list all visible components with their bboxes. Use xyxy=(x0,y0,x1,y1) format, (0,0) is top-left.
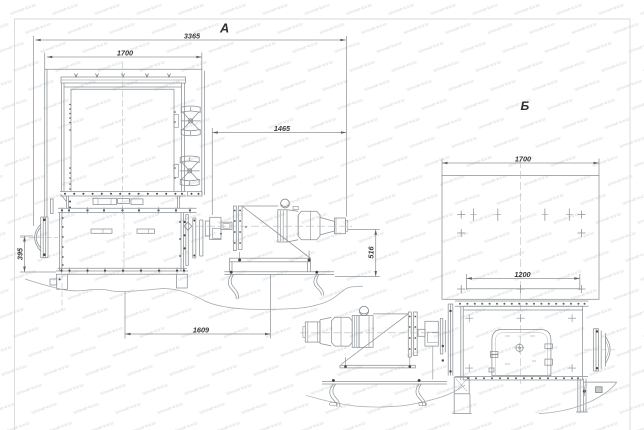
svg-text:tehsnab-krd.kz: tehsnab-krd.kz xyxy=(211,363,238,377)
svg-text:tehsnab-krd.kz: tehsnab-krd.kz xyxy=(640,268,644,282)
svg-text:tehsnab-krd.kz: tehsnab-krd.kz xyxy=(205,249,232,263)
svg-text:tehsnab-krd.kz: tehsnab-krd.kz xyxy=(631,363,644,377)
svg-text:tehsnab-krd.kz: tehsnab-krd.kz xyxy=(352,116,379,130)
svg-text:tehsnab-krd.kz: tehsnab-krd.kz xyxy=(430,268,457,282)
svg-text:tehsnab-krd.kz: tehsnab-krd.kz xyxy=(181,59,208,73)
svg-text:tehsnab-krd.kz: tehsnab-krd.kz xyxy=(514,2,541,16)
svg-text:tehsnab-krd.kz: tehsnab-krd.kz xyxy=(520,382,547,396)
svg-text:tehsnab-krd.kz: tehsnab-krd.kz xyxy=(0,382,1,396)
svg-text:tehsnab-krd.kz: tehsnab-krd.kz xyxy=(361,287,388,301)
svg-text:tehsnab-krd.kz: tehsnab-krd.kz xyxy=(4,154,31,168)
svg-text:tehsnab-krd.kz: tehsnab-krd.kz xyxy=(298,154,325,168)
svg-text:tehsnab-krd.kz: tehsnab-krd.kz xyxy=(577,135,604,149)
svg-text:tehsnab-krd.kz: tehsnab-krd.kz xyxy=(85,97,112,111)
svg-text:tehsnab-krd.kz: tehsnab-krd.kz xyxy=(43,363,70,377)
svg-text:tehsnab-krd.kz: tehsnab-krd.kz xyxy=(259,211,286,225)
svg-text:tehsnab-krd.kz: tehsnab-krd.kz xyxy=(328,192,355,206)
svg-text:tehsnab-krd.kz: tehsnab-krd.kz xyxy=(490,78,517,92)
svg-text:tehsnab-krd.kz: tehsnab-krd.kz xyxy=(556,268,583,282)
svg-text:tehsnab-krd.kz: tehsnab-krd.kz xyxy=(157,135,184,149)
svg-text:tehsnab-krd.kz: tehsnab-krd.kz xyxy=(253,97,280,111)
svg-text:tehsnab-krd.kz: tehsnab-krd.kz xyxy=(0,135,16,149)
svg-text:tehsnab-krd.kz: tehsnab-krd.kz xyxy=(304,2,331,16)
svg-text:tehsnab-krd.kz: tehsnab-krd.kz xyxy=(289,249,316,263)
svg-text:tehsnab-krd.kz: tehsnab-krd.kz xyxy=(529,21,556,35)
svg-text:tehsnab-krd.kz: tehsnab-krd.kz xyxy=(301,211,328,225)
svg-text:tehsnab-krd.kz: tehsnab-krd.kz xyxy=(472,2,499,16)
svg-text:tehsnab-krd.kz: tehsnab-krd.kz xyxy=(40,40,67,54)
svg-text:tehsnab-krd.kz: tehsnab-krd.kz xyxy=(169,97,196,111)
svg-text:tehsnab-krd.kz: tehsnab-krd.kz xyxy=(16,116,43,130)
svg-text:tehsnab-krd.kz: tehsnab-krd.kz xyxy=(280,78,307,92)
svg-text:tehsnab-krd.kz: tehsnab-krd.kz xyxy=(322,78,349,92)
svg-text:tehsnab-krd.kz: tehsnab-krd.kz xyxy=(502,40,529,54)
svg-text:tehsnab-krd.kz: tehsnab-krd.kz xyxy=(55,59,82,73)
svg-text:tehsnab-krd.kz: tehsnab-krd.kz xyxy=(346,268,373,282)
svg-text:tehsnab-krd.kz: tehsnab-krd.kz xyxy=(586,306,613,320)
svg-text:tehsnab-krd.kz: tehsnab-krd.kz xyxy=(130,420,157,430)
svg-text:tehsnab-krd.kz: tehsnab-krd.kz xyxy=(592,420,619,430)
svg-text:tehsnab-krd.kz: tehsnab-krd.kz xyxy=(0,173,4,187)
svg-text:tehsnab-krd.kz: tehsnab-krd.kz xyxy=(532,78,559,92)
svg-text:tehsnab-krd.kz: tehsnab-krd.kz xyxy=(520,116,547,130)
svg-text:tehsnab-krd.kz: tehsnab-krd.kz xyxy=(598,2,625,16)
svg-text:tehsnab-krd.kz: tehsnab-krd.kz xyxy=(298,420,325,430)
svg-text:tehsnab-krd.kz: tehsnab-krd.kz xyxy=(526,230,553,244)
svg-text:tehsnab-krd.kz: tehsnab-krd.kz xyxy=(226,116,253,130)
svg-text:tehsnab-krd.kz: tehsnab-krd.kz xyxy=(277,21,304,35)
svg-text:tehsnab-krd.kz: tehsnab-krd.kz xyxy=(184,382,211,396)
svg-text:tehsnab-krd.kz: tehsnab-krd.kz xyxy=(418,306,445,320)
svg-text:tehsnab-krd.kz: tehsnab-krd.kz xyxy=(115,135,142,149)
svg-text:tehsnab-krd.kz: tehsnab-krd.kz xyxy=(307,59,334,73)
svg-text:tehsnab-krd.kz: tehsnab-krd.kz xyxy=(367,135,394,149)
svg-text:tehsnab-krd.kz: tehsnab-krd.kz xyxy=(10,2,37,16)
svg-text:tehsnab-krd.kz: tehsnab-krd.kz xyxy=(586,40,613,54)
svg-text:tehsnab-krd.kz: tehsnab-krd.kz xyxy=(604,116,631,130)
svg-text:tehsnab-krd.kz: tehsnab-krd.kz xyxy=(562,116,589,130)
svg-text:tehsnab-krd.kz: tehsnab-krd.kz xyxy=(547,97,574,111)
svg-text:tehsnab-krd.kz: tehsnab-krd.kz xyxy=(475,59,502,73)
svg-text:tehsnab-krd.kz: tehsnab-krd.kz xyxy=(67,287,94,301)
svg-text:tehsnab-krd.kz: tehsnab-krd.kz xyxy=(67,21,94,35)
svg-text:tehsnab-krd.kz: tehsnab-krd.kz xyxy=(421,97,448,111)
svg-text:tehsnab-krd.kz: tehsnab-krd.kz xyxy=(265,325,292,339)
svg-text:tehsnab-krd.kz: tehsnab-krd.kz xyxy=(28,78,55,92)
svg-text:tehsnab-krd.kz: tehsnab-krd.kz xyxy=(376,40,403,54)
svg-text:tehsnab-krd.kz: tehsnab-krd.kz xyxy=(223,325,250,339)
svg-text:tehsnab-krd.kz: tehsnab-krd.kz xyxy=(472,268,499,282)
svg-text:tehsnab-krd.kz: tehsnab-krd.kz xyxy=(166,306,193,320)
svg-text:tehsnab-krd.kz: tehsnab-krd.kz xyxy=(448,78,475,92)
svg-text:tehsnab-krd.kz: tehsnab-krd.kz xyxy=(0,287,10,301)
svg-text:tehsnab-krd.kz: tehsnab-krd.kz xyxy=(592,154,619,168)
svg-text:tehsnab-krd.kz: tehsnab-krd.kz xyxy=(568,230,595,244)
svg-text:tehsnab-krd.kz: tehsnab-krd.kz xyxy=(64,230,91,244)
svg-text:tehsnab-krd.kz: tehsnab-krd.kz xyxy=(151,21,178,35)
svg-text:tehsnab-krd.kz: tehsnab-krd.kz xyxy=(463,97,490,111)
svg-text:tehsnab-krd.kz: tehsnab-krd.kz xyxy=(544,306,571,320)
svg-text:tehsnab-krd.kz: tehsnab-krd.kz xyxy=(220,2,247,16)
svg-text:tehsnab-krd.kz: tehsnab-krd.kz xyxy=(241,401,268,415)
svg-text:tehsnab-krd.kz: tehsnab-krd.kz xyxy=(325,135,352,149)
svg-text:tehsnab-krd.kz: tehsnab-krd.kz xyxy=(502,306,529,320)
svg-text:tehsnab-krd.kz: tehsnab-krd.kz xyxy=(382,154,409,168)
svg-text:tehsnab-krd.kz: tehsnab-krd.kz xyxy=(31,401,58,415)
svg-text:tehsnab-krd.kz: tehsnab-krd.kz xyxy=(58,382,85,396)
svg-text:tehsnab-krd.kz: tehsnab-krd.kz xyxy=(457,249,484,263)
svg-text:tehsnab-krd.kz: tehsnab-krd.kz xyxy=(214,154,241,168)
svg-text:3365: 3365 xyxy=(184,31,201,40)
svg-text:tehsnab-krd.kz: tehsnab-krd.kz xyxy=(346,2,373,16)
svg-text:tehsnab-krd.kz: tehsnab-krd.kz xyxy=(40,306,67,320)
svg-text:tehsnab-krd.kz: tehsnab-krd.kz xyxy=(145,173,172,187)
svg-text:tehsnab-krd.kz: tehsnab-krd.kz xyxy=(313,173,340,187)
svg-text:tehsnab-krd.kz: tehsnab-krd.kz xyxy=(0,401,16,415)
svg-text:tehsnab-krd.kz: tehsnab-krd.kz xyxy=(541,249,568,263)
svg-text:tehsnab-krd.kz: tehsnab-krd.kz xyxy=(46,420,73,430)
svg-text:tehsnab-krd.kz: tehsnab-krd.kz xyxy=(73,401,100,415)
svg-text:tehsnab-krd.kz: tehsnab-krd.kz xyxy=(403,21,430,35)
svg-text:tehsnab-krd.kz: tehsnab-krd.kz xyxy=(361,21,388,35)
svg-text:tehsnab-krd.kz: tehsnab-krd.kz xyxy=(559,325,586,339)
svg-text:tehsnab-krd.kz: tehsnab-krd.kz xyxy=(454,192,481,206)
svg-text:tehsnab-krd.kz: tehsnab-krd.kz xyxy=(19,173,46,187)
svg-text:tehsnab-krd.kz: tehsnab-krd.kz xyxy=(73,135,100,149)
svg-text:tehsnab-krd.kz: tehsnab-krd.kz xyxy=(0,21,10,35)
svg-text:tehsnab-krd.kz: tehsnab-krd.kz xyxy=(460,306,487,320)
svg-text:Б: Б xyxy=(521,99,530,113)
svg-text:tehsnab-krd.kz: tehsnab-krd.kz xyxy=(277,287,304,301)
svg-text:tehsnab-krd.kz: tehsnab-krd.kz xyxy=(403,287,430,301)
svg-text:tehsnab-krd.kz: tehsnab-krd.kz xyxy=(244,192,271,206)
svg-text:tehsnab-krd.kz: tehsnab-krd.kz xyxy=(508,420,535,430)
svg-text:tehsnab-krd.kz: tehsnab-krd.kz xyxy=(550,154,577,168)
svg-text:tehsnab-krd.kz: tehsnab-krd.kz xyxy=(589,363,616,377)
svg-text:tehsnab-krd.kz: tehsnab-krd.kz xyxy=(109,21,136,35)
svg-text:tehsnab-krd.kz: tehsnab-krd.kz xyxy=(538,192,565,206)
svg-text:tehsnab-krd.kz: tehsnab-krd.kz xyxy=(295,97,322,111)
svg-text:tehsnab-krd.kz: tehsnab-krd.kz xyxy=(157,401,184,415)
svg-text:tehsnab-krd.kz: tehsnab-krd.kz xyxy=(166,40,193,54)
svg-text:tehsnab-krd.kz: tehsnab-krd.kz xyxy=(115,401,142,415)
svg-text:tehsnab-krd.kz: tehsnab-krd.kz xyxy=(349,59,376,73)
svg-text:tehsnab-krd.kz: tehsnab-krd.kz xyxy=(388,268,415,282)
svg-text:tehsnab-krd.kz: tehsnab-krd.kz xyxy=(385,211,412,225)
svg-text:1465: 1465 xyxy=(274,124,291,133)
svg-text:tehsnab-krd.kz: tehsnab-krd.kz xyxy=(52,2,79,16)
svg-text:tehsnab-krd.kz: tehsnab-krd.kz xyxy=(202,192,229,206)
svg-text:tehsnab-krd.kz: tehsnab-krd.kz xyxy=(424,154,451,168)
svg-text:tehsnab-krd.kz: tehsnab-krd.kz xyxy=(139,59,166,73)
svg-text:tehsnab-krd.kz: tehsnab-krd.kz xyxy=(499,249,526,263)
svg-text:tehsnab-krd.kz: tehsnab-krd.kz xyxy=(154,344,181,358)
svg-text:tehsnab-krd.kz: tehsnab-krd.kz xyxy=(460,40,487,54)
svg-text:А: А xyxy=(219,21,229,36)
svg-text:tehsnab-krd.kz: tehsnab-krd.kz xyxy=(196,78,223,92)
svg-text:tehsnab-krd.kz: tehsnab-krd.kz xyxy=(85,363,112,377)
svg-text:tehsnab-krd.kz: tehsnab-krd.kz xyxy=(349,325,376,339)
svg-text:tehsnab-krd.kz: tehsnab-krd.kz xyxy=(70,344,97,358)
svg-text:tehsnab-krd.kz: tehsnab-krd.kz xyxy=(208,306,235,320)
svg-text:tehsnab-krd.kz: tehsnab-krd.kz xyxy=(82,40,109,54)
svg-text:516: 516 xyxy=(366,245,375,258)
svg-text:tehsnab-krd.kz: tehsnab-krd.kz xyxy=(280,344,307,358)
svg-text:tehsnab-krd.kz: tehsnab-krd.kz xyxy=(103,173,130,187)
svg-text:tehsnab-krd.kz: tehsnab-krd.kz xyxy=(94,268,121,282)
svg-text:tehsnab-krd.kz: tehsnab-krd.kz xyxy=(601,59,628,73)
svg-text:tehsnab-krd.kz: tehsnab-krd.kz xyxy=(376,306,403,320)
svg-text:tehsnab-krd.kz: tehsnab-krd.kz xyxy=(136,2,163,16)
svg-text:tehsnab-krd.kz: tehsnab-krd.kz xyxy=(0,192,19,206)
svg-text:tehsnab-krd.kz: tehsnab-krd.kz xyxy=(505,363,532,377)
svg-text:tehsnab-krd.kz: tehsnab-krd.kz xyxy=(613,21,640,35)
svg-text:tehsnab-krd.kz: tehsnab-krd.kz xyxy=(169,363,196,377)
svg-text:tehsnab-krd.kz: tehsnab-krd.kz xyxy=(634,154,644,168)
svg-text:tehsnab-krd.kz: tehsnab-krd.kz xyxy=(223,59,250,73)
svg-text:tehsnab-krd.kz: tehsnab-krd.kz xyxy=(364,344,391,358)
svg-text:tehsnab-krd.kz: tehsnab-krd.kz xyxy=(397,173,424,187)
svg-text:tehsnab-krd.kz: tehsnab-krd.kz xyxy=(76,192,103,206)
svg-text:tehsnab-krd.kz: tehsnab-krd.kz xyxy=(97,59,124,73)
svg-text:tehsnab-krd.kz: tehsnab-krd.kz xyxy=(370,192,397,206)
svg-text:tehsnab-krd.kz: tehsnab-krd.kz xyxy=(55,325,82,339)
svg-text:tehsnab-krd.kz: tehsnab-krd.kz xyxy=(394,116,421,130)
svg-text:tehsnab-krd.kz: tehsnab-krd.kz xyxy=(310,116,337,130)
svg-text:tehsnab-krd.kz: tehsnab-krd.kz xyxy=(466,154,493,168)
svg-text:tehsnab-krd.kz: tehsnab-krd.kz xyxy=(97,325,124,339)
svg-text:1700: 1700 xyxy=(515,154,531,163)
svg-text:tehsnab-krd.kz: tehsnab-krd.kz xyxy=(451,135,478,149)
svg-text:tehsnab-krd.kz: tehsnab-krd.kz xyxy=(10,268,37,282)
svg-text:tehsnab-krd.kz: tehsnab-krd.kz xyxy=(334,40,361,54)
svg-text:tehsnab-krd.kz: tehsnab-krd.kz xyxy=(79,249,106,263)
svg-text:tehsnab-krd.kz: tehsnab-krd.kz xyxy=(331,249,358,263)
svg-text:tehsnab-krd.kz: tehsnab-krd.kz xyxy=(226,382,253,396)
svg-text:tehsnab-krd.kz: tehsnab-krd.kz xyxy=(319,21,346,35)
svg-text:tehsnab-krd.kz: tehsnab-krd.kz xyxy=(52,268,79,282)
svg-text:tehsnab-krd.kz: tehsnab-krd.kz xyxy=(421,363,448,377)
svg-text:tehsnab-krd.kz: tehsnab-krd.kz xyxy=(295,363,322,377)
svg-text:tehsnab-krd.kz: tehsnab-krd.kz xyxy=(148,230,175,244)
svg-text:tehsnab-krd.kz: tehsnab-krd.kz xyxy=(268,382,295,396)
svg-text:tehsnab-krd.kz: tehsnab-krd.kz xyxy=(121,249,148,263)
svg-text:tehsnab-krd.kz: tehsnab-krd.kz xyxy=(571,21,598,35)
svg-text:tehsnab-krd.kz: tehsnab-krd.kz xyxy=(574,344,601,358)
svg-text:tehsnab-krd.kz: tehsnab-krd.kz xyxy=(478,116,505,130)
svg-text:tehsnab-krd.kz: tehsnab-krd.kz xyxy=(544,40,571,54)
svg-text:tehsnab-krd.kz: tehsnab-krd.kz xyxy=(82,306,109,320)
svg-text:tehsnab-krd.kz: tehsnab-krd.kz xyxy=(598,268,625,282)
svg-text:tehsnab-krd.kz: tehsnab-krd.kz xyxy=(619,401,644,415)
svg-text:tehsnab-krd.kz: tehsnab-krd.kz xyxy=(640,2,644,16)
svg-text:1700: 1700 xyxy=(117,48,133,57)
svg-text:tehsnab-krd.kz: tehsnab-krd.kz xyxy=(409,135,436,149)
svg-text:tehsnab-krd.kz: tehsnab-krd.kz xyxy=(25,287,52,301)
svg-text:tehsnab-krd.kz: tehsnab-krd.kz xyxy=(556,2,583,16)
svg-text:tehsnab-krd.kz: tehsnab-krd.kz xyxy=(442,230,469,244)
svg-text:tehsnab-krd.kz: tehsnab-krd.kz xyxy=(211,97,238,111)
svg-text:tehsnab-krd.kz: tehsnab-krd.kz xyxy=(247,249,274,263)
svg-text:tehsnab-krd.kz: tehsnab-krd.kz xyxy=(475,325,502,339)
svg-text:tehsnab-krd.kz: tehsnab-krd.kz xyxy=(637,211,644,225)
svg-text:tehsnab-krd.kz: tehsnab-krd.kz xyxy=(358,230,385,244)
svg-text:tehsnab-krd.kz: tehsnab-krd.kz xyxy=(13,59,40,73)
svg-text:tehsnab-krd.kz: tehsnab-krd.kz xyxy=(601,325,628,339)
svg-text:tehsnab-krd.kz: tehsnab-krd.kz xyxy=(88,154,115,168)
svg-text:tehsnab-krd.kz: tehsnab-krd.kz xyxy=(493,401,520,415)
svg-text:tehsnab-krd.kz: tehsnab-krd.kz xyxy=(469,211,496,225)
svg-text:tehsnab-krd.kz: tehsnab-krd.kz xyxy=(0,116,1,130)
svg-text:tehsnab-krd.kz: tehsnab-krd.kz xyxy=(0,78,13,92)
svg-text:tehsnab-krd.kz: tehsnab-krd.kz xyxy=(412,192,439,206)
svg-text:tehsnab-krd.kz: tehsnab-krd.kz xyxy=(88,420,115,430)
svg-text:tehsnab-krd.kz: tehsnab-krd.kz xyxy=(430,2,457,16)
svg-text:tehsnab-krd.kz: tehsnab-krd.kz xyxy=(4,420,31,430)
svg-text:tehsnab-krd.kz: tehsnab-krd.kz xyxy=(487,21,514,35)
svg-text:tehsnab-krd.kz: tehsnab-krd.kz xyxy=(613,287,640,301)
svg-text:tehsnab-krd.kz: tehsnab-krd.kz xyxy=(535,135,562,149)
svg-text:tehsnab-krd.kz: tehsnab-krd.kz xyxy=(253,363,280,377)
svg-text:tehsnab-krd.kz: tehsnab-krd.kz xyxy=(0,40,25,54)
svg-text:tehsnab-krd.kz: tehsnab-krd.kz xyxy=(577,401,604,415)
svg-text:tehsnab-krd.kz: tehsnab-krd.kz xyxy=(559,59,586,73)
svg-text:tehsnab-krd.kz: tehsnab-krd.kz xyxy=(100,382,127,396)
svg-text:tehsnab-krd.kz: tehsnab-krd.kz xyxy=(382,420,409,430)
svg-text:tehsnab-krd.kz: tehsnab-krd.kz xyxy=(400,230,427,244)
svg-text:tehsnab-krd.kz: tehsnab-krd.kz xyxy=(427,211,454,225)
svg-text:tehsnab-krd.kz: tehsnab-krd.kz xyxy=(241,135,268,149)
svg-text:tehsnab-krd.kz: tehsnab-krd.kz xyxy=(451,401,478,415)
svg-text:tehsnab-krd.kz: tehsnab-krd.kz xyxy=(250,306,277,320)
svg-text:tehsnab-krd.kz: tehsnab-krd.kz xyxy=(0,306,25,320)
svg-text:tehsnab-krd.kz: tehsnab-krd.kz xyxy=(388,2,415,16)
svg-text:tehsnab-krd.kz: tehsnab-krd.kz xyxy=(490,344,517,358)
svg-text:tehsnab-krd.kz: tehsnab-krd.kz xyxy=(178,268,205,282)
svg-text:tehsnab-krd.kz: tehsnab-krd.kz xyxy=(292,40,319,54)
svg-text:tehsnab-krd.kz: tehsnab-krd.kz xyxy=(517,59,544,73)
svg-text:395: 395 xyxy=(15,247,24,260)
svg-text:tehsnab-krd.kz: tehsnab-krd.kz xyxy=(112,344,139,358)
svg-text:tehsnab-krd.kz: tehsnab-krd.kz xyxy=(16,382,43,396)
svg-text:tehsnab-krd.kz: tehsnab-krd.kz xyxy=(46,154,73,168)
svg-text:tehsnab-krd.kz: tehsnab-krd.kz xyxy=(607,173,634,187)
svg-text:tehsnab-krd.kz: tehsnab-krd.kz xyxy=(139,325,166,339)
svg-text:tehsnab-krd.kz: tehsnab-krd.kz xyxy=(235,287,262,301)
svg-text:tehsnab-krd.kz: tehsnab-krd.kz xyxy=(631,97,644,111)
svg-text:tehsnab-krd.kz: tehsnab-krd.kz xyxy=(436,116,463,130)
svg-text:tehsnab-krd.kz: tehsnab-krd.kz xyxy=(238,344,265,358)
svg-text:tehsnab-krd.kz: tehsnab-krd.kz xyxy=(379,97,406,111)
svg-text:tehsnab-krd.kz: tehsnab-krd.kz xyxy=(463,363,490,377)
svg-text:tehsnab-krd.kz: tehsnab-krd.kz xyxy=(616,78,643,92)
svg-text:tehsnab-krd.kz: tehsnab-krd.kz xyxy=(127,363,154,377)
svg-text:tehsnab-krd.kz: tehsnab-krd.kz xyxy=(7,211,34,225)
svg-text:tehsnab-krd.kz: tehsnab-krd.kz xyxy=(580,192,607,206)
svg-text:tehsnab-krd.kz: tehsnab-krd.kz xyxy=(133,211,160,225)
svg-text:tehsnab-krd.kz: tehsnab-krd.kz xyxy=(445,21,472,35)
svg-text:tehsnab-krd.kz: tehsnab-krd.kz xyxy=(553,211,580,225)
svg-text:tehsnab-krd.kz: tehsnab-krd.kz xyxy=(31,135,58,149)
svg-text:tehsnab-krd.kz: tehsnab-krd.kz xyxy=(283,135,310,149)
svg-text:tehsnab-krd.kz: tehsnab-krd.kz xyxy=(250,40,277,54)
svg-text:tehsnab-krd.kz: tehsnab-krd.kz xyxy=(142,116,169,130)
svg-text:tehsnab-krd.kz: tehsnab-krd.kz xyxy=(433,59,460,73)
svg-text:tehsnab-krd.kz: tehsnab-krd.kz xyxy=(550,420,577,430)
svg-text:tehsnab-krd.kz: tehsnab-krd.kz xyxy=(256,154,283,168)
svg-text:1609: 1609 xyxy=(193,325,210,334)
svg-text:tehsnab-krd.kz: tehsnab-krd.kz xyxy=(415,249,442,263)
svg-text:tehsnab-krd.kz: tehsnab-krd.kz xyxy=(355,173,382,187)
svg-text:tehsnab-krd.kz: tehsnab-krd.kz xyxy=(625,249,644,263)
svg-text:tehsnab-krd.kz: tehsnab-krd.kz xyxy=(61,173,88,187)
svg-text:tehsnab-krd.kz: tehsnab-krd.kz xyxy=(130,154,157,168)
svg-text:tehsnab-krd.kz: tehsnab-krd.kz xyxy=(229,173,256,187)
svg-text:tehsnab-krd.kz: tehsnab-krd.kz xyxy=(340,154,367,168)
svg-text:tehsnab-krd.kz: tehsnab-krd.kz xyxy=(193,287,220,301)
svg-text:tehsnab-krd.kz: tehsnab-krd.kz xyxy=(262,2,289,16)
svg-text:tehsnab-krd.kz: tehsnab-krd.kz xyxy=(208,40,235,54)
svg-text:tehsnab-krd.kz: tehsnab-krd.kz xyxy=(187,173,214,187)
svg-text:tehsnab-krd.kz: tehsnab-krd.kz xyxy=(367,401,394,415)
svg-text:tehsnab-krd.kz: tehsnab-krd.kz xyxy=(589,97,616,111)
svg-text:tehsnab-krd.kz: tehsnab-krd.kz xyxy=(124,306,151,320)
svg-text:tehsnab-krd.kz: tehsnab-krd.kz xyxy=(127,97,154,111)
svg-text:tehsnab-krd.kz: tehsnab-krd.kz xyxy=(0,230,7,244)
svg-text:tehsnab-krd.kz: tehsnab-krd.kz xyxy=(94,2,121,16)
svg-text:tehsnab-krd.kz: tehsnab-krd.kz xyxy=(214,420,241,430)
svg-text:tehsnab-krd.kz: tehsnab-krd.kz xyxy=(493,135,520,149)
svg-text:tehsnab-krd.kz: tehsnab-krd.kz xyxy=(178,2,205,16)
svg-text:1200: 1200 xyxy=(514,270,530,279)
svg-text:tehsnab-krd.kz: tehsnab-krd.kz xyxy=(364,78,391,92)
svg-text:tehsnab-krd.kz: tehsnab-krd.kz xyxy=(496,192,523,206)
svg-text:tehsnab-krd.kz: tehsnab-krd.kz xyxy=(262,268,289,282)
svg-text:tehsnab-krd.kz: tehsnab-krd.kz xyxy=(238,78,265,92)
svg-text:tehsnab-krd.kz: tehsnab-krd.kz xyxy=(574,78,601,92)
svg-text:tehsnab-krd.kz: tehsnab-krd.kz xyxy=(478,382,505,396)
svg-text:tehsnab-krd.kz: tehsnab-krd.kz xyxy=(256,420,283,430)
svg-text:tehsnab-krd.kz: tehsnab-krd.kz xyxy=(484,230,511,244)
svg-text:tehsnab-krd.kz: tehsnab-krd.kz xyxy=(610,230,637,244)
svg-text:tehsnab-krd.kz: tehsnab-krd.kz xyxy=(616,344,643,358)
svg-text:tehsnab-krd.kz: tehsnab-krd.kz xyxy=(583,249,610,263)
svg-text:tehsnab-krd.kz: tehsnab-krd.kz xyxy=(619,135,644,149)
svg-text:tehsnab-krd.kz: tehsnab-krd.kz xyxy=(109,287,136,301)
svg-text:tehsnab-krd.kz: tehsnab-krd.kz xyxy=(511,211,538,225)
svg-text:tehsnab-krd.kz: tehsnab-krd.kz xyxy=(196,344,223,358)
svg-text:tehsnab-krd.kz: tehsnab-krd.kz xyxy=(424,420,451,430)
svg-text:tehsnab-krd.kz: tehsnab-krd.kz xyxy=(391,59,418,73)
svg-text:tehsnab-krd.kz: tehsnab-krd.kz xyxy=(283,401,310,415)
svg-text:tehsnab-krd.kz: tehsnab-krd.kz xyxy=(604,382,631,396)
svg-text:tehsnab-krd.kz: tehsnab-krd.kz xyxy=(13,325,40,339)
svg-text:tehsnab-krd.kz: tehsnab-krd.kz xyxy=(340,420,367,430)
svg-text:tehsnab-krd.kz: tehsnab-krd.kz xyxy=(265,59,292,73)
svg-text:tehsnab-krd.kz: tehsnab-krd.kz xyxy=(271,173,298,187)
svg-text:tehsnab-krd.kz: tehsnab-krd.kz xyxy=(25,21,52,35)
svg-text:tehsnab-krd.kz: tehsnab-krd.kz xyxy=(106,230,133,244)
svg-text:tehsnab-krd.kz: tehsnab-krd.kz xyxy=(0,344,13,358)
svg-text:tehsnab-krd.kz: tehsnab-krd.kz xyxy=(235,21,262,35)
svg-text:tehsnab-krd.kz: tehsnab-krd.kz xyxy=(172,420,199,430)
svg-text:tehsnab-krd.kz: tehsnab-krd.kz xyxy=(634,420,644,430)
svg-text:tehsnab-krd.kz: tehsnab-krd.kz xyxy=(406,78,433,92)
svg-text:tehsnab-krd.kz: tehsnab-krd.kz xyxy=(142,382,169,396)
svg-text:tehsnab-krd.kz: tehsnab-krd.kz xyxy=(373,249,400,263)
svg-text:tehsnab-krd.kz: tehsnab-krd.kz xyxy=(466,420,493,430)
svg-text:tehsnab-krd.kz: tehsnab-krd.kz xyxy=(28,344,55,358)
